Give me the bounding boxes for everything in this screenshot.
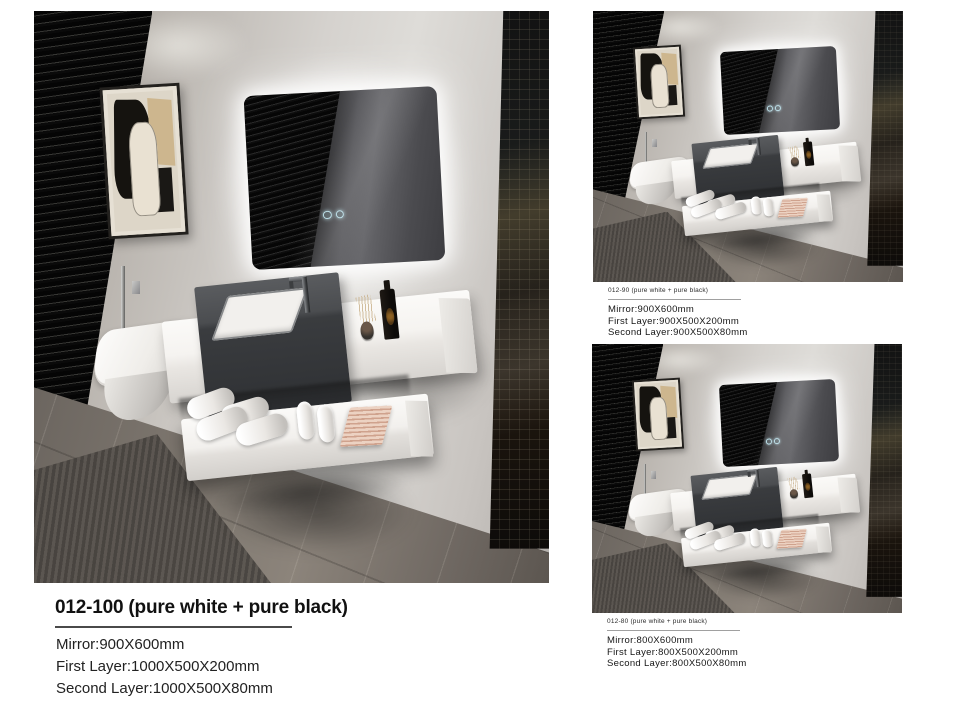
mirror-touch-controls: [767, 105, 781, 111]
mirror-touch-controls: [766, 437, 780, 443]
faucet-stem: [755, 469, 759, 486]
mirror-reflection: [719, 382, 781, 467]
mirror-touch-dot: [323, 210, 332, 219]
product-title: 012-80 (pure white + pure black): [607, 618, 902, 625]
product-specs: Mirror:800X600mm First Layer:800X500X200…: [607, 635, 902, 670]
art-shape-vase: [648, 396, 668, 440]
art-shape-vase: [649, 64, 669, 109]
bathroom-scene: [34, 11, 549, 583]
product-specs: Mirror:900X600mm First Layer:900X500X200…: [608, 304, 903, 339]
title-underline: [607, 630, 740, 631]
spec-first-layer: First Layer:1000X500X200mm: [56, 656, 549, 678]
spec-mirror: Mirror:900X600mm: [56, 634, 549, 656]
sprayer-wall-plate: [652, 139, 657, 147]
spec-second-layer: Second Layer:800X500X80mm: [607, 658, 902, 670]
paper-roll: [762, 197, 774, 216]
product-title: 012-100 (pure white + pure black): [55, 597, 549, 619]
product-photo-012-90: [593, 11, 903, 282]
mirror-touch-dot: [774, 437, 780, 443]
sprayer-wall-plate: [651, 471, 656, 479]
sprayer-wall-plate: [132, 281, 140, 294]
wall-art-frame: [99, 83, 188, 239]
product-card-012-100: 012-100 (pure white + pure black) Mirror…: [34, 11, 549, 700]
faucet: [289, 276, 323, 315]
product-photo-012-100: [34, 11, 549, 583]
soap-bottle: [802, 141, 813, 166]
mirror-reflection: [720, 49, 782, 135]
spec-mirror: Mirror:800X600mm: [607, 635, 902, 647]
sprayer-rod: [121, 266, 125, 335]
art-shape-vase: [127, 122, 160, 217]
mirror-touch-controls: [323, 210, 344, 219]
folded-towels: [777, 197, 807, 217]
led-mirror: [243, 86, 445, 270]
paper-roll: [750, 196, 762, 215]
hand-sprayer: [116, 266, 142, 335]
spec-mirror: Mirror:900X600mm: [608, 304, 903, 316]
paper-roll: [749, 527, 761, 546]
folded-towels: [776, 529, 806, 549]
dried-plant: [786, 145, 802, 167]
sprayer-rod: [645, 132, 647, 165]
title-underline: [608, 299, 741, 300]
paper-roll: [761, 529, 773, 548]
spec-second-layer: Second Layer:1000X500X80mm: [56, 678, 549, 700]
sprayer-rod: [644, 464, 646, 496]
art-mat: [634, 379, 683, 449]
led-mirror: [720, 46, 840, 135]
bathroom-scene: [593, 11, 903, 282]
wall-art-frame: [633, 45, 685, 120]
vanity-unit: [664, 458, 873, 591]
dried-plant: [352, 295, 379, 340]
art-mat: [635, 47, 684, 118]
mirror-touch-dot: [335, 210, 344, 219]
product-title: 012-90 (pure white + pure black): [608, 287, 903, 294]
vanity-unit: [665, 126, 874, 260]
mirror-reflection: [243, 91, 349, 270]
faucet: [748, 136, 768, 155]
mirror-touch-dot: [766, 438, 772, 444]
soap-bottle: [801, 473, 812, 498]
art-mat: [102, 86, 185, 236]
led-mirror: [719, 379, 839, 467]
faucet: [747, 468, 767, 487]
vanity-unit: [151, 258, 504, 531]
faucet-stem: [756, 137, 760, 154]
mirror-touch-dot: [767, 106, 773, 112]
wall-art-frame: [632, 378, 684, 452]
faucet-tip: [289, 281, 294, 288]
product-card-012-80: 012-80 (pure white + pure black) Mirror:…: [592, 344, 902, 670]
product-card-012-90: 012-90 (pure white + pure black) Mirror:…: [593, 11, 903, 339]
title-underline: [55, 626, 292, 628]
faucet-tip: [747, 472, 750, 476]
spec-first-layer: First Layer:800X500X200mm: [607, 647, 902, 659]
bathroom-scene: [592, 344, 902, 613]
mirror-touch-dot: [775, 105, 781, 111]
product-photo-012-80: [592, 344, 902, 613]
faucet-stem: [302, 277, 310, 313]
product-specs: Mirror:900X600mm First Layer:1000X500X20…: [56, 634, 549, 700]
faucet-tip: [748, 140, 751, 144]
dried-plant: [785, 477, 801, 499]
spec-second-layer: Second Layer:900X500X80mm: [608, 327, 903, 339]
spec-first-layer: First Layer:900X500X200mm: [608, 316, 903, 328]
